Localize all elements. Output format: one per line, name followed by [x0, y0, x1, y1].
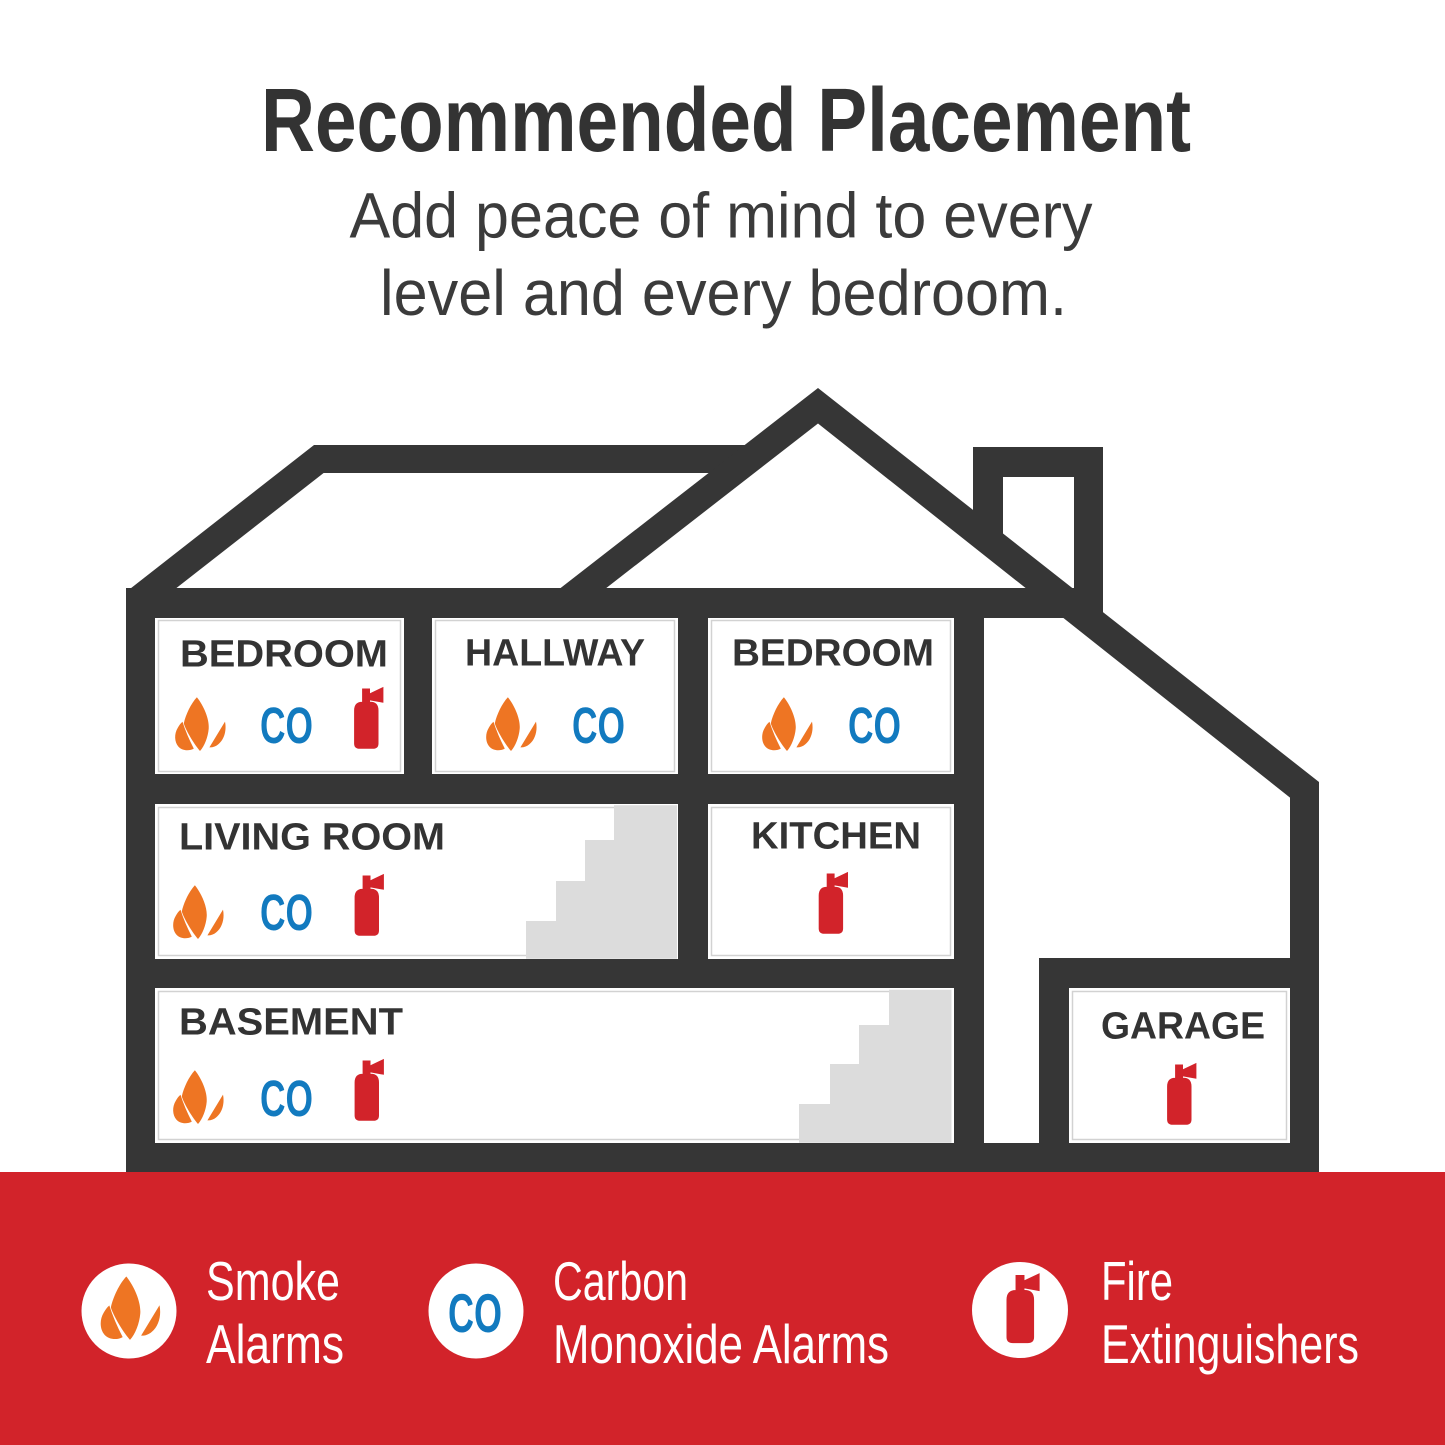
svg-text:KITCHEN: KITCHEN [751, 816, 921, 858]
svg-text:Add peace of mind to every: Add peace of mind to every [350, 180, 1093, 252]
svg-text:Extinguishers: Extinguishers [1101, 1313, 1359, 1375]
svg-text:BEDROOM: BEDROOM [732, 633, 934, 675]
svg-text:LIVING ROOM: LIVING ROOM [179, 817, 445, 859]
svg-text:level and every bedroom.: level and every bedroom. [380, 257, 1067, 329]
svg-text:CO: CO [572, 698, 625, 755]
svg-text:BASEMENT: BASEMENT [179, 1002, 403, 1044]
svg-text:Fire: Fire [1101, 1250, 1173, 1312]
svg-text:CO: CO [260, 698, 313, 755]
svg-text:Smoke: Smoke [206, 1250, 340, 1312]
svg-text:Alarms: Alarms [206, 1313, 344, 1375]
svg-text:CO: CO [848, 698, 901, 755]
svg-text:HALLWAY: HALLWAY [465, 633, 645, 675]
svg-text:Monoxide Alarms: Monoxide Alarms [553, 1313, 889, 1375]
svg-text:CO: CO [448, 1282, 502, 1344]
svg-text:Carbon: Carbon [553, 1250, 688, 1312]
svg-text:CO: CO [260, 885, 313, 942]
svg-text:Recommended Placement: Recommended Placement [261, 71, 1191, 171]
svg-text:GARAGE: GARAGE [1101, 1006, 1265, 1048]
svg-text:CO: CO [260, 1071, 313, 1128]
svg-text:BEDROOM: BEDROOM [180, 634, 388, 676]
